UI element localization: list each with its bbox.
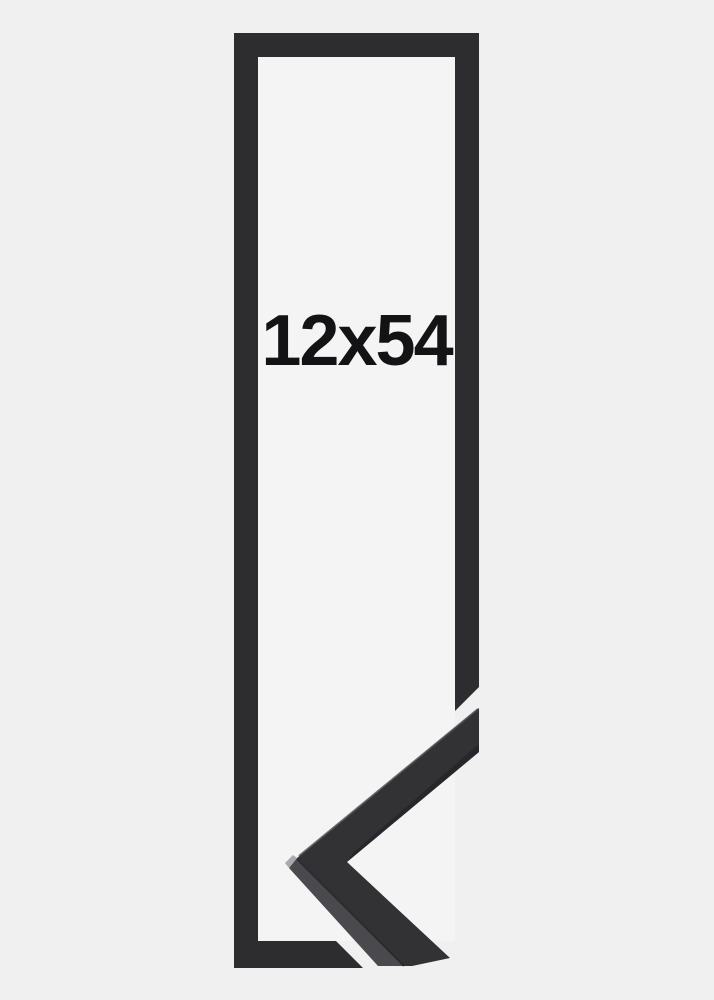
frame-left-bar — [234, 33, 258, 968]
size-label: 12x54 — [234, 300, 479, 382]
product-image: 12x54 — [0, 0, 714, 1000]
frame-illustration — [0, 0, 714, 1000]
frame-top-bar — [234, 33, 479, 57]
